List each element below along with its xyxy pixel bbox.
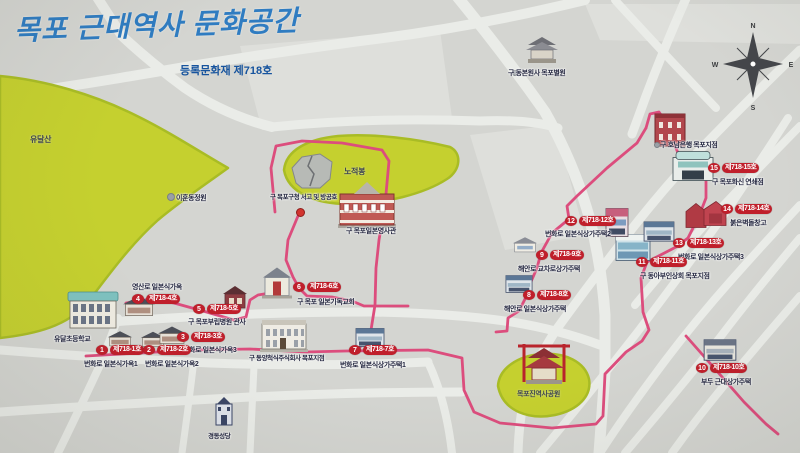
site-label-12: 번화로 일본식상가주택2: [545, 229, 610, 239]
area-label-yudalsan: 유달산: [30, 134, 51, 145]
site-badge-2: 2제718-2호: [143, 345, 191, 355]
site-badge-7: 7제718-7호: [349, 345, 397, 355]
landmark-label-ihundong-garden: 이훈동정원: [176, 193, 206, 203]
site-number-4: 4: [132, 294, 144, 304]
site-number-10: 10: [696, 363, 708, 373]
garden-dot-marker: [167, 193, 175, 201]
site-number-5: 5: [193, 304, 205, 314]
site-number-7: 7: [349, 345, 361, 355]
site-label-4: 영산로 일본식가옥: [132, 282, 182, 292]
archive-red-dot-marker: [296, 208, 305, 217]
landmark-label-japanese-consulate: 구 목포일본영사관: [346, 226, 396, 236]
site-label-1: 번화로 일본식가옥1: [84, 359, 137, 369]
site-number-1: 1: [96, 345, 108, 355]
site-badge-1: 1제718-1호: [96, 345, 144, 355]
site-label-9: 해안로 교차로상가주택: [518, 264, 580, 274]
site-code-9: 제718-9호: [550, 250, 584, 260]
road-network: N E S W: [0, 0, 800, 453]
landmark-label-honam-bank: 구 호남은행 목포지점: [660, 140, 717, 150]
japanese-church-icon-6: [260, 265, 294, 305]
site-number-2: 2: [143, 345, 155, 355]
site-code-8: 제718-8호: [537, 290, 571, 300]
compass-w: W: [712, 62, 719, 69]
site-code-3: 제718-3호: [191, 332, 225, 342]
site-label-5: 구 목포부립병원 관사: [188, 317, 245, 327]
site-number-15: 15: [708, 163, 720, 173]
site-badge-13: 13제718-13호: [673, 238, 724, 248]
site-label-2: 번화로 일본식가옥2: [145, 359, 198, 369]
site-badge-11: 11제718-11호: [636, 257, 687, 267]
area-label-nojeokbong: 노적봉: [344, 166, 365, 177]
site-number-8: 8: [523, 290, 535, 300]
site-code-12: 제718-12호: [579, 216, 616, 226]
site-code-7: 제718-7호: [363, 345, 397, 355]
site-number-3: 3: [177, 332, 189, 342]
site-badge-3: 3제718-3호: [177, 332, 225, 342]
site-label-8: 해안로 일본식상가주택: [504, 304, 566, 314]
site-badge-15: 15제718-15호: [708, 163, 759, 173]
site-code-14: 제718-14호: [735, 204, 772, 214]
site-code-5: 제718-5호: [207, 304, 241, 314]
mokpo-heritage-map: N E S W 목포 근대역사 문화공간 등록문화재 제718호 유달산 노적봉…: [0, 0, 800, 453]
site-badge-12: 12제718-12호: [565, 216, 616, 226]
landmark-label-yudal-school: 유달초등학교: [54, 334, 90, 344]
mokpojin-pavilion-icon: [514, 334, 574, 395]
site-label-10: 부두 근대상가주택: [701, 377, 751, 387]
site-code-10: 제718-10호: [710, 363, 747, 373]
map-subtitle: 등록문화재 제718호: [180, 62, 272, 78]
site-label-14: 붉은벽돌창고: [730, 218, 766, 228]
landmark-label-gyeongdong-cathedral: 경동성당: [208, 430, 230, 440]
landmark-label-dongbonwonsa: 구 동본원사 목포별원: [508, 68, 565, 78]
site-code-4: 제718-4호: [146, 294, 180, 304]
dongbonwonsa-temple-icon: [524, 36, 560, 71]
area-label-mokpojin-park: 목포진역사공원: [517, 389, 560, 399]
compass-s: S: [751, 105, 756, 112]
site-label-13: 번화로 일본식상가주택3: [678, 252, 743, 262]
site-number-6: 6: [293, 282, 305, 292]
site-badge-10: 10제718-10호: [696, 363, 747, 373]
landmark-label-archive-shelter: 구 목포구청 서고 및 방공호: [270, 191, 337, 201]
site-code-2: 제718-2호: [157, 345, 191, 355]
site-number-14: 14: [721, 204, 733, 214]
site-label-11: 구 동아부인상회 목포지점: [640, 271, 710, 281]
site-code-11: 제718-11호: [650, 257, 687, 267]
compass-n: N: [750, 23, 755, 30]
site-number-11: 11: [636, 257, 648, 267]
site-code-13: 제718-13호: [687, 238, 724, 248]
compass-e: E: [789, 62, 794, 69]
site-number-12: 12: [565, 216, 577, 226]
landmark-label-oriental-development: 구 동양척식주식회사 목포지점: [249, 352, 324, 362]
site-badge-14: 14제718-14호: [721, 204, 772, 214]
site-label-6: 구 목포 일본기독교회: [297, 297, 354, 307]
site-code-1: 제718-1호: [110, 345, 144, 355]
site-label-15: 구 목포화신 연쇄점: [712, 177, 763, 187]
site-badge-4: 4제718-4호: [132, 294, 180, 304]
site-label-3: 번화로 일본식가옥3: [183, 345, 236, 355]
site-badge-9: 9제718-9호: [536, 250, 584, 260]
site-number-9: 9: [536, 250, 548, 260]
site-code-6: 제718-6호: [307, 282, 341, 292]
site-code-15: 제718-15호: [722, 163, 759, 173]
site-label-7: 번화로 일본식상가주택1: [340, 360, 405, 370]
site-badge-6: 6제718-6호: [293, 282, 341, 292]
shop-house-icon-13: [643, 220, 675, 248]
site-number-13: 13: [673, 238, 685, 248]
corner-house-icon-9: [512, 236, 538, 259]
site-badge-8: 8제718-8호: [523, 290, 571, 300]
site-badge-5: 5제718-5호: [193, 304, 241, 314]
